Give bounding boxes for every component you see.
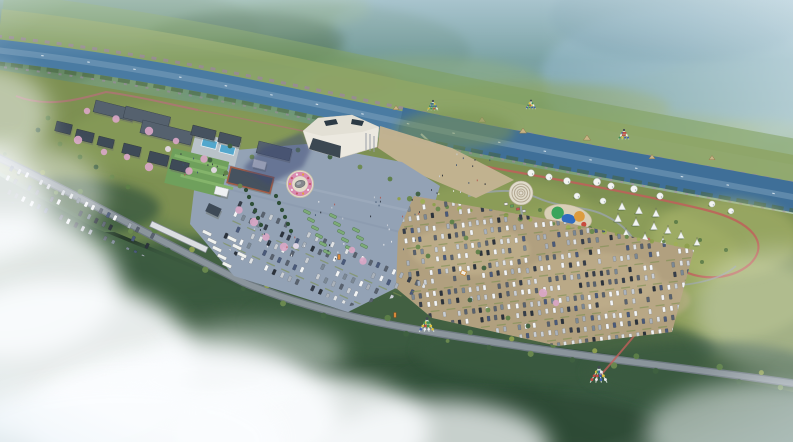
vignette bbox=[0, 0, 793, 442]
aerial-rendering-stage bbox=[0, 0, 793, 442]
aerial-resort-rendering bbox=[0, 0, 793, 442]
